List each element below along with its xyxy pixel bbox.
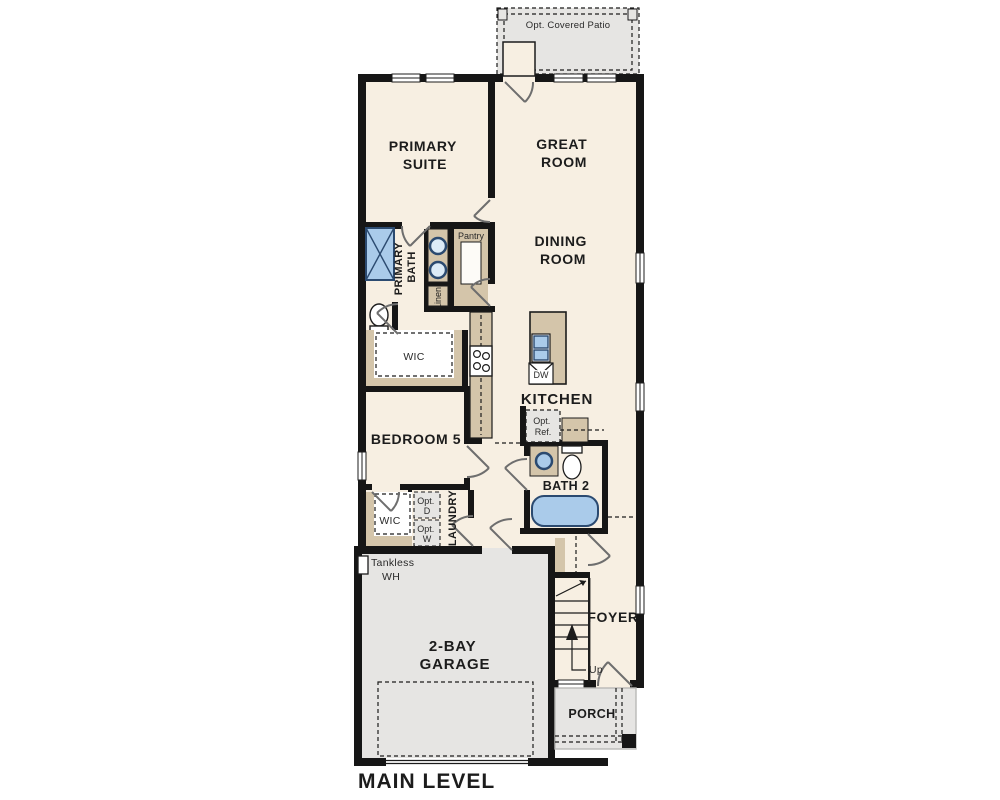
window bbox=[554, 74, 583, 82]
garage-door bbox=[386, 758, 528, 766]
pantry-label: Pantry bbox=[458, 231, 485, 241]
wall-segment bbox=[548, 546, 555, 766]
wall-segment bbox=[524, 446, 530, 456]
porch-column bbox=[622, 734, 636, 748]
window bbox=[636, 383, 644, 411]
plan-title: MAIN LEVEL bbox=[358, 770, 495, 793]
sink bbox=[430, 262, 446, 278]
wall-segment bbox=[448, 222, 454, 312]
bedroom5-label: BEDROOM 5 bbox=[371, 431, 461, 447]
wall-segment bbox=[400, 484, 470, 490]
island-sink-bowl bbox=[534, 336, 548, 348]
wall-segment bbox=[424, 282, 448, 286]
wall-segment bbox=[430, 222, 495, 229]
wall-segment bbox=[354, 546, 362, 766]
bath2-label: BATH 2 bbox=[543, 479, 590, 493]
wall-segment bbox=[468, 490, 474, 518]
toilet bbox=[563, 455, 581, 479]
linen-label: Linen bbox=[433, 287, 443, 309]
wall-segment bbox=[424, 229, 428, 312]
window bbox=[358, 452, 366, 480]
porch-label: PORCH bbox=[568, 707, 615, 721]
wic-bedroom5-label: WIC bbox=[379, 515, 400, 527]
patio-door-panel bbox=[503, 42, 535, 76]
range bbox=[470, 346, 492, 376]
wall-segment bbox=[358, 546, 482, 554]
wall-segment bbox=[548, 572, 590, 578]
opt-refrigerator bbox=[526, 410, 560, 442]
sink bbox=[430, 238, 446, 254]
floor-plan-page: DW bbox=[0, 0, 1000, 800]
wall-segment bbox=[602, 440, 608, 534]
wic-primary-label: WIC bbox=[403, 351, 424, 363]
closet-shelf bbox=[555, 538, 565, 572]
dw-label: DW bbox=[534, 370, 549, 380]
window bbox=[558, 680, 584, 688]
window bbox=[392, 74, 420, 82]
kitchen-label: KITCHEN bbox=[521, 391, 593, 408]
garage-label: 2-BAY GARAGE bbox=[420, 638, 491, 673]
bathtub bbox=[532, 496, 598, 526]
wall-segment bbox=[358, 386, 470, 392]
wall-segment bbox=[630, 680, 644, 688]
foyer-label: FOYER bbox=[587, 609, 638, 625]
wall-segment bbox=[358, 74, 366, 554]
laundry-label: LAUNDRY bbox=[447, 490, 459, 546]
up-label: Up bbox=[589, 664, 603, 676]
wall-segment bbox=[462, 330, 468, 386]
wall-segment bbox=[520, 528, 608, 534]
wall-segment bbox=[488, 226, 495, 284]
opt-ref-label: Opt. Ref. bbox=[533, 416, 553, 437]
sink bbox=[536, 453, 552, 469]
wall-segment bbox=[512, 546, 552, 554]
wall-segment bbox=[524, 490, 530, 534]
floor-plan-drawing: DW bbox=[0, 0, 1000, 800]
wall-segment bbox=[488, 82, 495, 198]
garage-door-opening bbox=[386, 758, 528, 766]
wall-segment bbox=[358, 484, 372, 490]
window bbox=[636, 253, 644, 283]
window bbox=[426, 74, 454, 82]
patio-label: Opt. Covered Patio bbox=[526, 20, 610, 31]
island-sink-bowl bbox=[534, 350, 548, 360]
tankless-water-heater bbox=[358, 556, 368, 574]
pantry-inner bbox=[461, 242, 481, 284]
window bbox=[587, 74, 616, 82]
patio-post-right bbox=[628, 9, 637, 20]
patio-post-left bbox=[498, 9, 507, 20]
toilet-tank bbox=[562, 446, 582, 453]
